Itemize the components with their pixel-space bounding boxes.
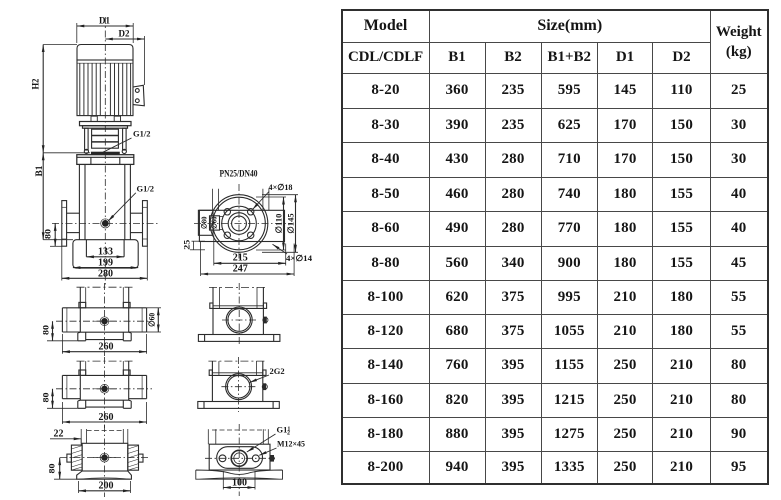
svg-text:4×∅14: 4×∅14 — [286, 253, 313, 263]
svg-text:G1/2: G1/2 — [137, 184, 154, 194]
svg-text:80: 80 — [42, 229, 52, 239]
svg-text:D2: D2 — [119, 29, 130, 39]
svg-text:100: 100 — [232, 477, 247, 488]
svg-text:260: 260 — [99, 412, 114, 423]
svg-text:200: 200 — [99, 481, 114, 492]
svg-text:∅110: ∅110 — [273, 214, 283, 234]
svg-text:25: 25 — [182, 240, 192, 250]
svg-text:247: 247 — [233, 263, 248, 274]
svg-text:4×∅18: 4×∅18 — [269, 182, 293, 192]
svg-text:∅60: ∅60 — [147, 313, 157, 327]
svg-text:80: 80 — [47, 464, 57, 474]
svg-text:80: 80 — [40, 393, 50, 403]
svg-text:PN25/DN40: PN25/DN40 — [220, 169, 258, 179]
svg-text:260: 260 — [99, 342, 114, 353]
svg-text:B1: B1 — [34, 165, 44, 177]
svg-text:2G2: 2G2 — [270, 366, 285, 376]
svg-text:280: 280 — [98, 268, 113, 279]
svg-text:M12×45: M12×45 — [277, 439, 305, 449]
svg-text:133: 133 — [98, 247, 113, 258]
svg-text:22: 22 — [54, 429, 64, 440]
svg-text:D1: D1 — [99, 16, 110, 26]
svg-text:H2: H2 — [31, 78, 41, 89]
svg-text:∅80: ∅80 — [199, 216, 208, 229]
svg-text:G112: G112 — [277, 425, 291, 437]
svg-text:80: 80 — [40, 325, 50, 335]
svg-text:∅145: ∅145 — [285, 213, 295, 233]
svg-text:G1/2: G1/2 — [133, 129, 150, 139]
svg-text:215: 215 — [233, 253, 248, 264]
svg-text:199: 199 — [98, 257, 113, 268]
